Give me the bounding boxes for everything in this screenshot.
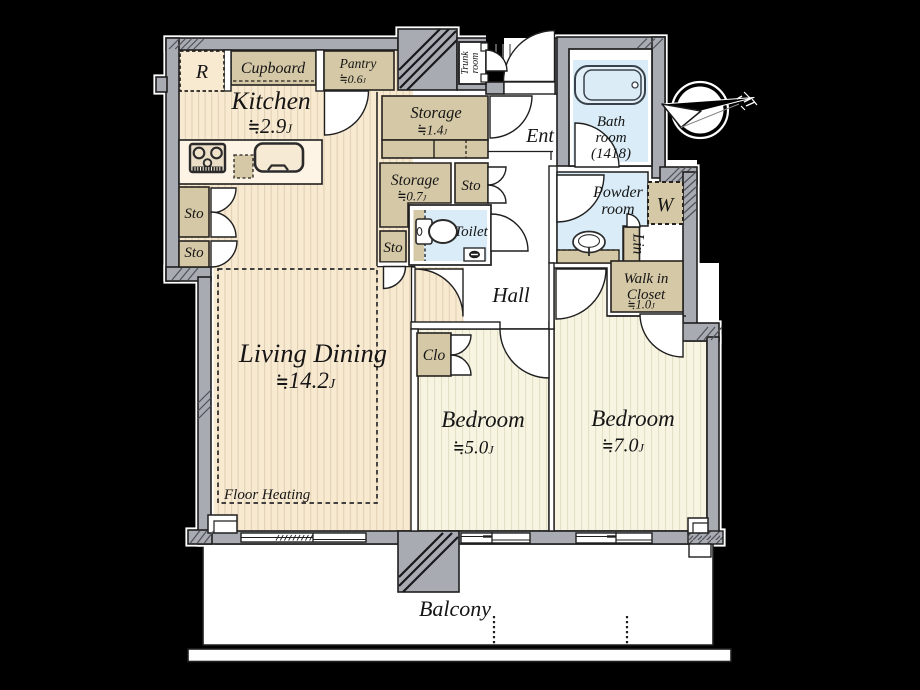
svg-text:Storage: Storage xyxy=(391,172,439,189)
svg-text:Sto: Sto xyxy=(383,240,403,256)
svg-text:Pantry: Pantry xyxy=(339,56,377,71)
svg-text:Sto: Sto xyxy=(461,178,481,194)
svg-text:room: room xyxy=(601,201,634,218)
svg-text:Ent: Ent xyxy=(525,125,554,147)
svg-text:Sto: Sto xyxy=(184,245,204,261)
svg-text:Living Dining: Living Dining xyxy=(238,338,387,368)
svg-text:14.2J: 14.2J xyxy=(289,368,336,393)
svg-text:Bedroom: Bedroom xyxy=(591,406,674,431)
svg-text:Storage: Storage xyxy=(410,103,461,122)
svg-text:Bedroom: Bedroom xyxy=(441,407,524,432)
svg-text:R: R xyxy=(195,61,208,83)
svg-text:Bath: Bath xyxy=(597,114,625,130)
svg-text:Walk in: Walk in xyxy=(624,271,669,287)
svg-text:(1418): (1418) xyxy=(591,146,631,162)
svg-text:Balcony: Balcony xyxy=(419,596,491,621)
svg-text:room: room xyxy=(470,53,481,74)
svg-text:Cupboard: Cupboard xyxy=(241,60,306,77)
svg-text:Hall: Hall xyxy=(491,283,530,307)
svg-text:W: W xyxy=(657,194,676,216)
svg-text:Lin: Lin xyxy=(630,233,647,255)
svg-text:Toilet: Toilet xyxy=(454,224,488,240)
svg-text:Clo: Clo xyxy=(423,347,446,364)
svg-text:Floor Heating: Floor Heating xyxy=(223,487,311,503)
svg-text:room: room xyxy=(595,130,626,146)
svg-text:Kitchen: Kitchen xyxy=(230,86,310,115)
svg-text:Powder: Powder xyxy=(592,184,644,201)
svg-text:Sto: Sto xyxy=(184,206,204,222)
